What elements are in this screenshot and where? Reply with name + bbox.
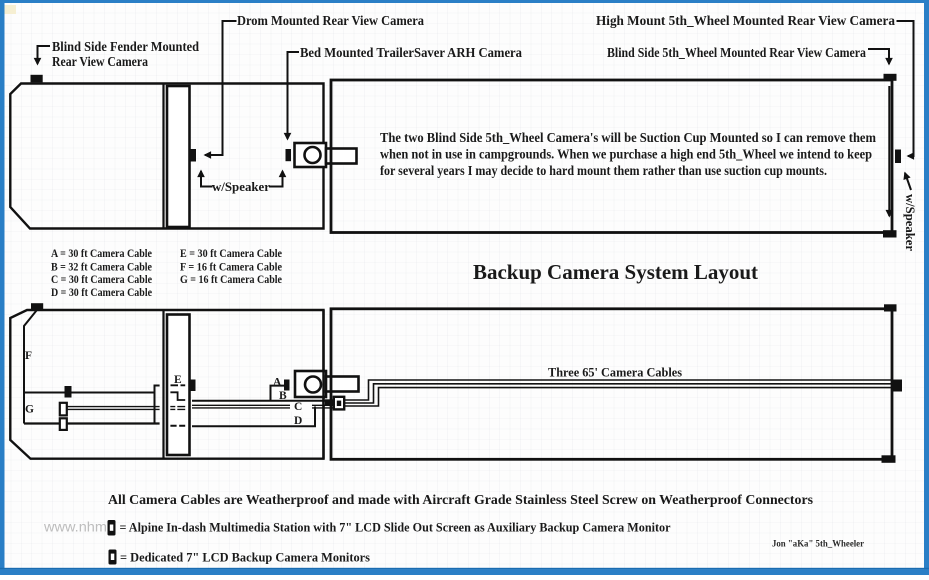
svg-text:B = 32 ft Camera Cable: B = 32 ft Camera Cable — [51, 260, 152, 273]
svg-text:F = 16 ft Camera Cable: F = 16 ft Camera Cable — [180, 260, 282, 273]
svg-text:Rear View Camera: Rear View Camera — [52, 54, 148, 69]
svg-text:D = 30 ft Camera Cable: D = 30 ft Camera Cable — [51, 286, 152, 299]
svg-text:G: G — [25, 404, 34, 416]
svg-text:A: A — [273, 377, 282, 389]
svg-text:All Camera Cables are Weatherp: All Camera Cables are Weatherproof and m… — [108, 492, 813, 507]
svg-text:F: F — [25, 350, 32, 362]
svg-text:= Dedicated 7" LCD Backup Came: = Dedicated 7" LCD Backup Camera Monitor… — [120, 551, 370, 565]
svg-text:www.nhm: www.nhm — [43, 520, 107, 535]
svg-text:w/Speaker: w/Speaker — [903, 194, 917, 251]
svg-text:Blind Side 5th_Wheel Mounted R: Blind Side 5th_Wheel Mounted Rear View C… — [607, 45, 866, 60]
svg-text:Backup Camera System Layout: Backup Camera System Layout — [473, 260, 759, 284]
svg-text:when not in use in campgrounds: when not in use in campgrounds. When we … — [380, 147, 872, 162]
svg-text:w/Speaker: w/Speaker — [212, 179, 270, 194]
svg-text:C = 30 ft Camera Cable: C = 30 ft Camera Cable — [51, 273, 152, 286]
svg-text:C: C — [294, 401, 302, 413]
svg-text:Three 65' Camera Cables: Three 65' Camera Cables — [548, 365, 682, 379]
svg-text:E: E — [174, 374, 182, 386]
svg-text:Jon "aKa" 5th_Wheeler: Jon "aKa" 5th_Wheeler — [772, 539, 865, 550]
svg-text:for several years I may decide: for several years I may decide to hard m… — [380, 163, 827, 178]
svg-text:= Alpine In-dash Multimedia St: = Alpine In-dash Multimedia Station with… — [120, 521, 671, 535]
svg-text:Bed Mounted TrailerSaver ARH C: Bed Mounted TrailerSaver ARH Camera — [300, 45, 522, 60]
svg-text:The two Blind Side 5th_Wheel C: The two Blind Side 5th_Wheel Camera's wi… — [380, 130, 876, 145]
svg-text:B: B — [279, 390, 287, 402]
svg-text:E = 30 ft Camera Cable: E = 30 ft Camera Cable — [180, 247, 282, 260]
svg-text:High Mount 5th_Wheel Mounted R: High Mount 5th_Wheel Mounted Rear View C… — [596, 13, 895, 28]
svg-text:Drom Mounted Rear View Camera: Drom Mounted Rear View Camera — [237, 13, 424, 28]
svg-text:D: D — [294, 415, 302, 427]
svg-text:A = 30 ft Camera Cable: A = 30 ft Camera Cable — [51, 247, 152, 260]
svg-text:Blind Side Fender Mounted: Blind Side Fender Mounted — [52, 39, 200, 54]
svg-text:G = 16 ft Camera Cable: G = 16 ft Camera Cable — [180, 273, 282, 286]
